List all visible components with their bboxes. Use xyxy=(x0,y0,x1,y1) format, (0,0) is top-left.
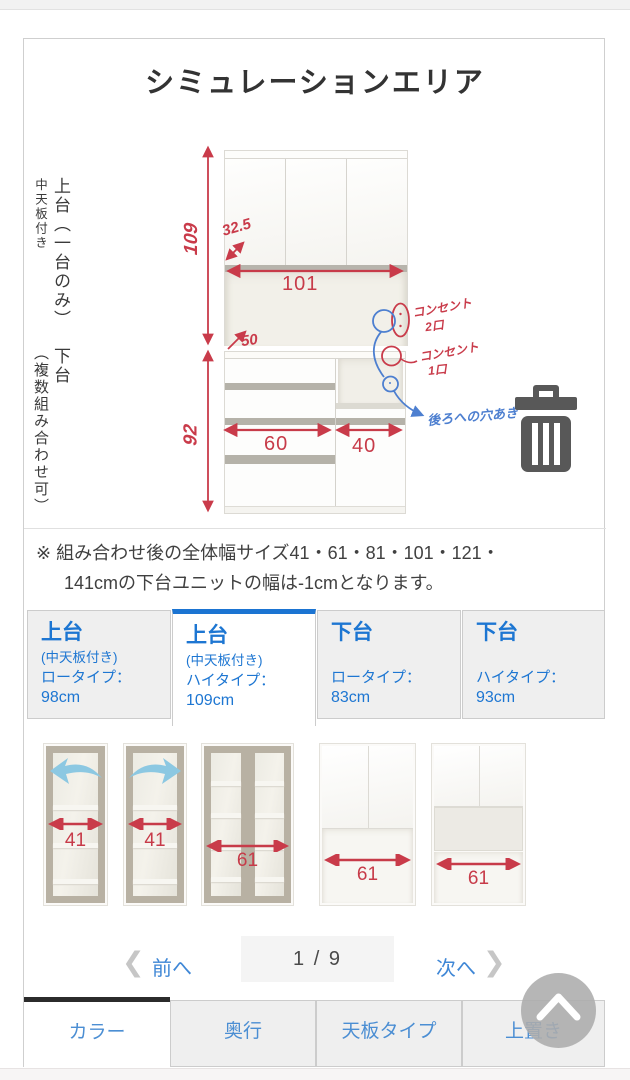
dim-counter-depth: 50 xyxy=(240,331,259,350)
tab-upper-high-type-selected[interactable]: 上台 (中天板付き) ハイタイプ： 109cm xyxy=(172,609,316,726)
tab-title: 下台 xyxy=(331,621,460,645)
tab-height: 83cm xyxy=(331,688,460,708)
cabinet-base xyxy=(225,506,405,513)
drawer-handle xyxy=(225,383,335,390)
tab-subtitle xyxy=(331,649,460,666)
flap-door xyxy=(434,807,523,851)
tab-subtitle xyxy=(476,649,604,666)
mid-shelf xyxy=(225,265,407,272)
outlet-double-count: 2口 xyxy=(424,316,445,335)
product-thumb-41-right[interactable]: 41 xyxy=(123,743,187,906)
product-thumb-61-glass[interactable]: 61 xyxy=(201,743,294,906)
tab-height: 98cm xyxy=(41,688,170,708)
combination-note: ※ 組み合わせ後の全体幅サイズ41・61・81・101・121・ 141cmの下… xyxy=(24,528,606,598)
tab-lower-high-type[interactable]: 下台 ハイタイプ： 93cm xyxy=(462,610,605,719)
dim-lower-left-width: 60 xyxy=(264,433,288,456)
tab-subtitle: (中天板付き) xyxy=(41,649,170,666)
upper-cabinet-top-panel xyxy=(225,151,407,159)
drawer-handle xyxy=(225,455,335,464)
dim-arrow-41 xyxy=(46,818,105,830)
chevron-right-icon[interactable]: ❯ xyxy=(483,947,506,978)
simulation-page: シミュレーションエリア 上台（一台のみ） 中天板付き 下台 （複数組み合わせ可） xyxy=(0,0,630,1080)
dim-label: 61 xyxy=(320,864,415,886)
arrow-right-icon xyxy=(127,756,183,786)
lower-unit-label: 下台 xyxy=(48,347,73,385)
tab-color-selected[interactable]: カラー xyxy=(24,997,170,1068)
note-line2: 141cmの下台ユニットの幅は-1cmとなります。 xyxy=(36,568,606,598)
dim-upper-height: 109 xyxy=(181,222,203,256)
counter-top xyxy=(225,352,405,359)
dim-arrow-41 xyxy=(126,818,184,830)
tab-top-board-type[interactable]: 天板タイプ xyxy=(316,1000,462,1067)
chevron-up-icon xyxy=(521,973,596,1048)
dim-lower-height: 92 xyxy=(181,423,203,446)
dim-lower-right-width: 40 xyxy=(352,435,376,458)
tab-lower-low-type[interactable]: 下台 ロータイプ： 83cm xyxy=(317,610,461,719)
glass-door-right xyxy=(248,746,292,903)
tab-type: ロータイプ： xyxy=(331,668,460,688)
tab-title: 上台 xyxy=(186,624,315,648)
upper-door xyxy=(225,159,286,265)
open-cube xyxy=(338,359,403,403)
drawer-handle xyxy=(336,418,405,425)
upper-cabinet-diagram xyxy=(224,150,408,346)
tab-height: 109cm xyxy=(186,691,315,711)
upper-unit-label: 上台（一台のみ） xyxy=(48,177,73,329)
upper-unit-sublabel: 中天板付き xyxy=(31,178,50,251)
upper-cabinet-doors xyxy=(225,159,407,265)
bottom-strip xyxy=(0,1068,630,1080)
product-thumb-61-open[interactable]: 61 xyxy=(319,743,416,906)
tab-type: ハイタイプ： xyxy=(186,671,315,691)
trash-icon xyxy=(514,385,578,473)
dim-label: 41 xyxy=(124,830,186,852)
tab-title: 下台 xyxy=(476,621,604,645)
dim-label: 41 xyxy=(44,830,107,852)
simulation-container: シミュレーションエリア 上台（一台のみ） 中天板付き 下台 （複数組み合わせ可） xyxy=(23,38,605,1067)
page-indicator: 1 / 9 xyxy=(241,936,394,982)
pagination: ❮ 前へ 1 / 9 次へ ❯ xyxy=(24,931,606,1001)
product-thumb-41-left[interactable]: 41 xyxy=(43,743,108,906)
upper-door xyxy=(347,159,407,265)
open-cube-shelf xyxy=(336,403,405,409)
delete-button[interactable] xyxy=(513,385,579,475)
product-thumb-61-flap[interactable]: 61 xyxy=(431,743,526,906)
tab-height: 93cm xyxy=(476,688,604,708)
scroll-to-top-button[interactable] xyxy=(521,973,596,1048)
tab-depth[interactable]: 奥行 xyxy=(170,1000,316,1067)
lower-unit-sublabel: （複数組み合わせ可） xyxy=(30,345,51,515)
tab-title: 上台 xyxy=(41,621,170,645)
tab-type: ロータイプ： xyxy=(41,668,170,688)
next-page-button[interactable]: 次へ xyxy=(436,952,476,981)
upper-door xyxy=(286,159,347,265)
tab-type: ハイタイプ： xyxy=(476,668,604,688)
glass-door-left xyxy=(204,746,248,903)
page-title: シミュレーションエリア xyxy=(24,59,606,101)
chevron-left-icon[interactable]: ❮ xyxy=(122,947,145,978)
white-doors xyxy=(434,746,523,807)
dim-label: 61 xyxy=(432,868,525,890)
prev-page-button[interactable]: 前へ xyxy=(152,952,192,981)
tab-subtitle: (中天板付き) xyxy=(186,652,315,669)
note-line1: ※ 組み合わせ後の全体幅サイズ41・61・81・101・121・ xyxy=(36,543,500,563)
tab-upper-low-type[interactable]: 上台 (中天板付き) ロータイプ： 98cm xyxy=(27,610,171,719)
dim-inner-width: 101 xyxy=(282,273,318,296)
top-strip xyxy=(0,0,630,10)
lower-cabinet-diagram xyxy=(224,351,406,514)
outlet-single-count: 1口 xyxy=(427,360,447,379)
arrow-left-icon xyxy=(48,756,104,786)
dim-label: 61 xyxy=(202,850,293,872)
drawer-handle xyxy=(225,418,335,425)
white-doors xyxy=(322,746,413,829)
